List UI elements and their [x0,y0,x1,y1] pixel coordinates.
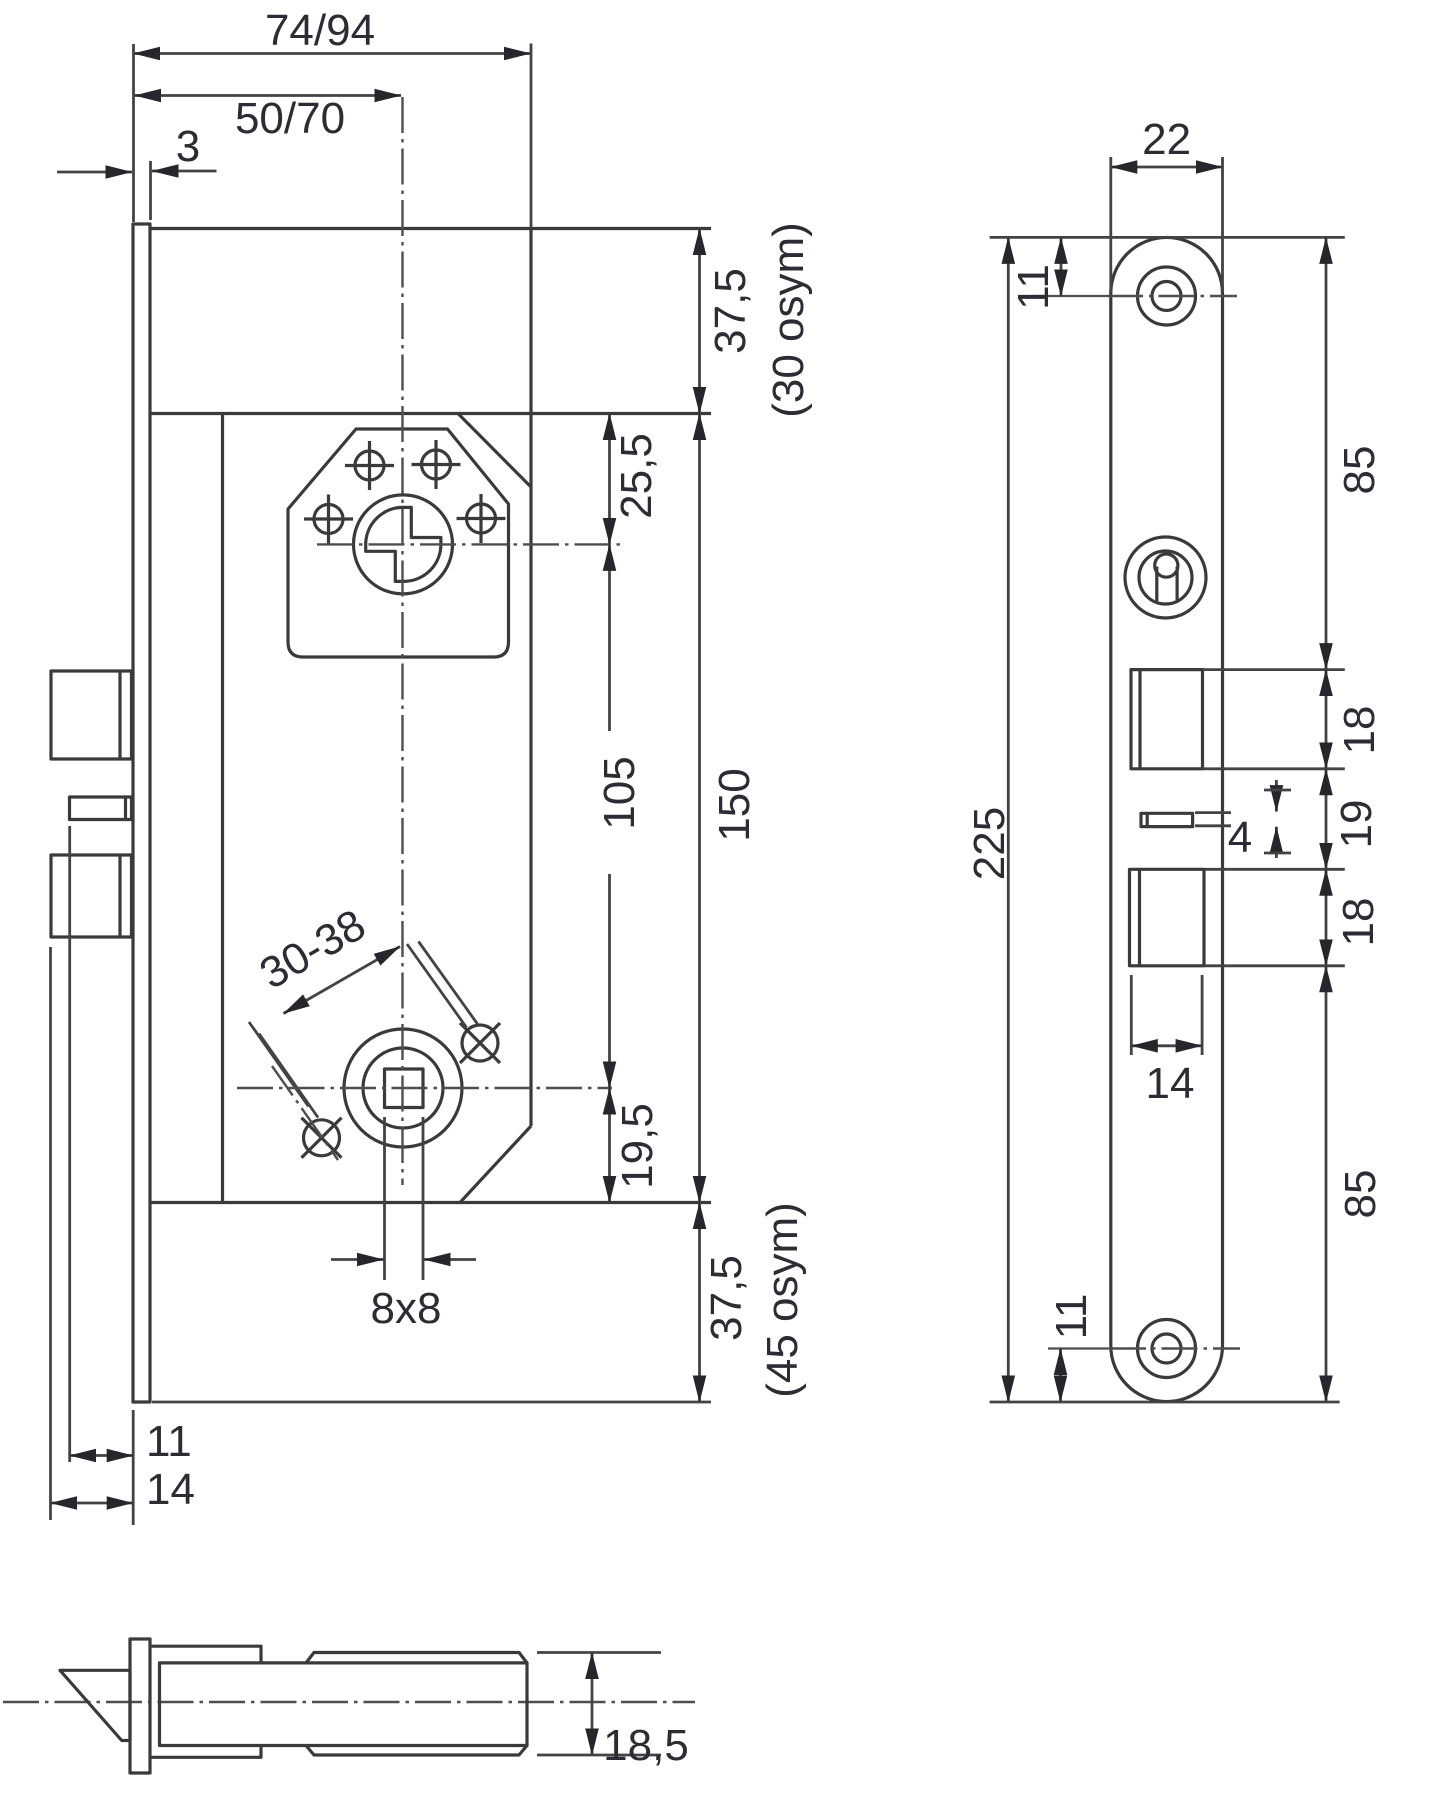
svg-text:4: 4 [1228,813,1252,862]
svg-text:25,5: 25,5 [612,433,661,519]
svg-text:18: 18 [1335,706,1384,755]
svg-text:37,5: 37,5 [702,1255,751,1341]
svg-text:18,5: 18,5 [603,1721,689,1770]
svg-text:150: 150 [710,768,759,841]
svg-text:(45 osym): (45 osym) [758,1202,807,1398]
svg-text:37,5: 37,5 [706,268,755,354]
svg-text:18: 18 [1334,898,1383,947]
svg-text:8x8: 8x8 [371,1284,442,1333]
svg-text:105: 105 [595,756,644,829]
svg-text:11: 11 [1009,264,1058,310]
svg-text:50/70: 50/70 [235,94,345,143]
svg-text:14: 14 [146,1465,195,1514]
svg-text:22: 22 [1142,115,1191,164]
svg-text:19,5: 19,5 [613,1103,662,1189]
svg-text:74/94: 74/94 [265,6,375,55]
svg-text:225: 225 [965,807,1014,880]
svg-text:85: 85 [1335,446,1384,495]
svg-text:11: 11 [1047,1294,1096,1340]
svg-text:(30 osym): (30 osym) [764,222,813,418]
svg-text:11: 11 [146,1417,192,1466]
svg-text:85: 85 [1336,1170,1385,1219]
svg-text:19: 19 [1332,800,1381,849]
svg-text:14: 14 [1146,1059,1195,1108]
svg-text:3: 3 [176,122,200,171]
